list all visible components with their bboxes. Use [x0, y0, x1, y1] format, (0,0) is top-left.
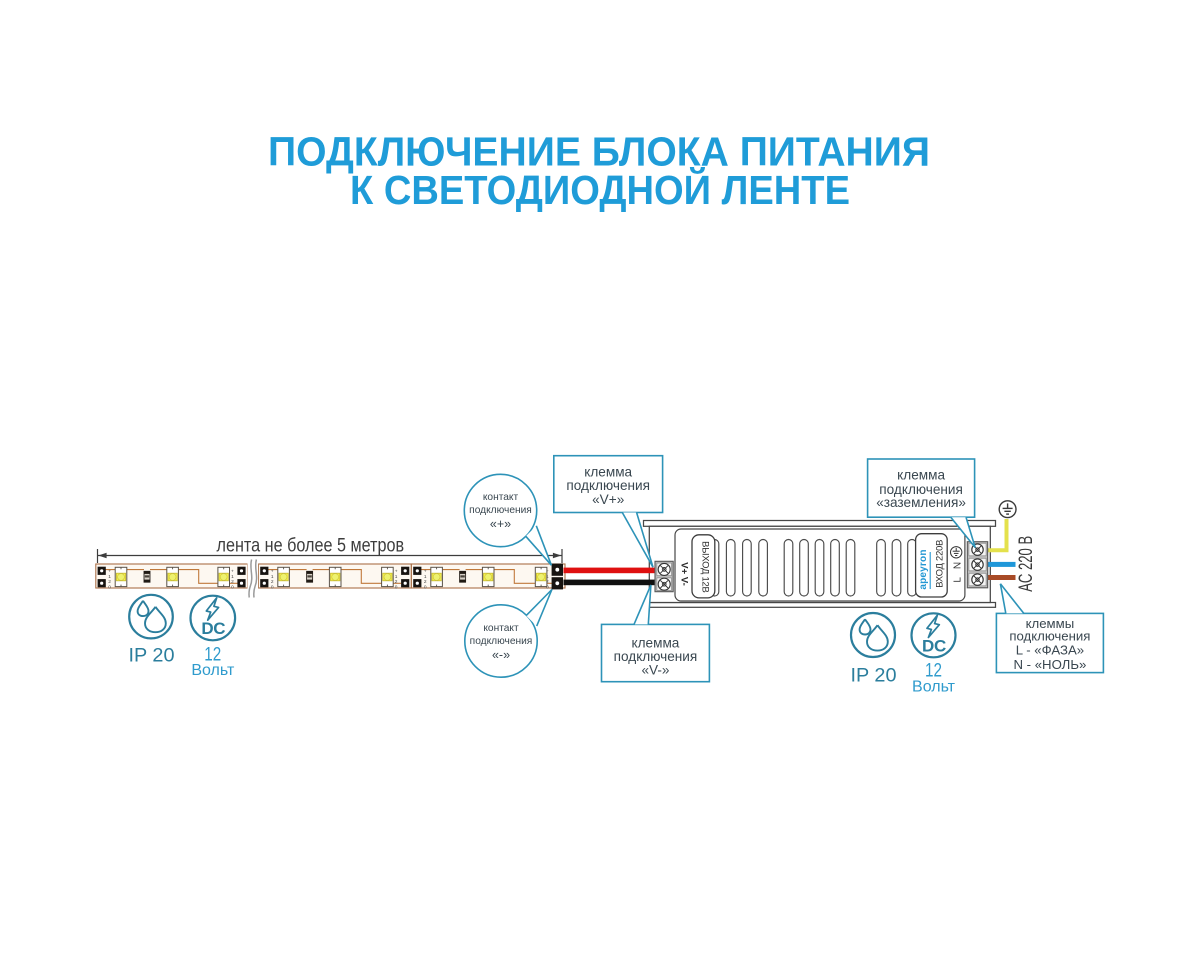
- svg-text:L: L: [953, 577, 964, 583]
- svg-text:IP 20: IP 20: [851, 666, 897, 687]
- svg-text:ВХОД 220В: ВХОД 220В: [933, 540, 944, 588]
- svg-text:+: +: [424, 569, 427, 574]
- svg-text:«+»: «+»: [490, 517, 511, 531]
- svg-text:+: +: [271, 569, 274, 574]
- svg-text:0: 0: [424, 584, 427, 590]
- svg-text:2: 2: [108, 579, 111, 585]
- svg-text:подключения: подключения: [470, 636, 533, 647]
- svg-text:Вольт: Вольт: [912, 679, 956, 696]
- svg-text:2: 2: [395, 579, 398, 585]
- svg-text:+: +: [231, 569, 234, 574]
- svg-text:Вольт: Вольт: [191, 662, 235, 679]
- svg-text:0: 0: [108, 584, 111, 590]
- svg-text:V+ V-: V+ V-: [679, 562, 690, 586]
- svg-text:ВЫХОД 12В: ВЫХОД 12В: [701, 541, 712, 592]
- svg-text:AC 220 В: AC 220 В: [1016, 536, 1037, 592]
- svg-text:подключения: подключения: [469, 505, 532, 516]
- svg-text:2: 2: [271, 579, 274, 585]
- svg-text:apeyron: apeyron: [918, 549, 929, 589]
- svg-text:контакт: контакт: [483, 623, 519, 634]
- svg-text:подключения: подключения: [1009, 628, 1090, 643]
- svg-text:«заземления»: «заземления»: [876, 495, 966, 510]
- svg-text:лента не более 5 метров: лента не более 5 метров: [217, 535, 405, 557]
- svg-text:К СВЕТОДИОДНОЙ ЛЕНТЕ: К СВЕТОДИОДНОЙ ЛЕНТЕ: [350, 167, 850, 213]
- svg-text:+: +: [395, 569, 398, 574]
- svg-text:N: N: [953, 562, 964, 569]
- svg-text:DC: DC: [201, 619, 225, 638]
- svg-text:DC: DC: [922, 636, 946, 655]
- svg-text:IP 20: IP 20: [129, 646, 175, 667]
- svg-text:L - «ФАЗА»: L - «ФАЗА»: [1016, 643, 1084, 658]
- svg-text:«-»: «-»: [492, 648, 510, 662]
- svg-text:1: 1: [395, 574, 398, 580]
- svg-text:«V+»: «V+»: [592, 492, 625, 507]
- svg-text:подключения: подключения: [614, 649, 698, 664]
- svg-text:клемма: клемма: [897, 467, 945, 482]
- svg-text:0: 0: [231, 584, 234, 590]
- svg-text:подключения: подключения: [566, 478, 650, 493]
- svg-text:0: 0: [271, 584, 274, 590]
- svg-text:1: 1: [108, 574, 111, 580]
- svg-text:«V-»: «V-»: [641, 663, 669, 678]
- svg-text:+: +: [108, 569, 111, 574]
- svg-text:2: 2: [424, 579, 427, 585]
- svg-text:контакт: контакт: [483, 492, 519, 503]
- svg-text:N - «НОЛЬ»: N - «НОЛЬ»: [1013, 657, 1086, 672]
- svg-text:1: 1: [424, 574, 427, 580]
- svg-text:1: 1: [231, 574, 234, 580]
- svg-text:1: 1: [271, 574, 274, 580]
- svg-text:0: 0: [395, 584, 398, 590]
- svg-text:2: 2: [231, 579, 234, 585]
